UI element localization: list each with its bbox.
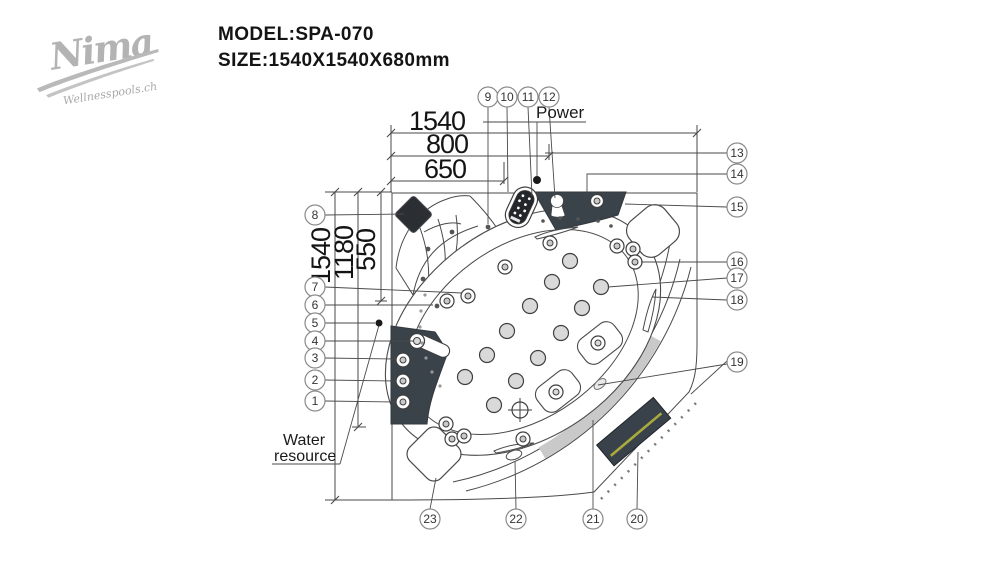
callout-6: 6 — [312, 298, 319, 312]
callout-2: 2 — [312, 373, 319, 387]
callout-10: 10 — [500, 90, 514, 104]
callout-7: 7 — [312, 280, 319, 294]
spa-plan-drawing: 1540 800 650 1540 1180 550 — [0, 0, 1000, 563]
svg-text:resource: resource — [274, 448, 336, 465]
callout-17: 17 — [730, 271, 744, 285]
callout-3: 3 — [312, 351, 319, 365]
callout-18: 18 — [730, 293, 744, 307]
callout-14: 14 — [730, 167, 744, 181]
callout-15: 15 — [730, 200, 744, 214]
spa-spec-sheet: Nima Wellnesspools.ch MODEL:SPA-070 SIZE… — [0, 0, 1000, 563]
callout-11: 11 — [522, 90, 535, 104]
dim-height-550: 550 — [351, 229, 381, 271]
dimension-labels: 1540 800 650 1540 1180 550 — [306, 106, 468, 284]
callout-23: 23 — [423, 512, 437, 526]
power-point-dot — [533, 176, 541, 184]
water-inlet-dot — [376, 320, 383, 327]
water-resource-label: Water resource — [272, 432, 340, 465]
callout-22: 22 — [509, 512, 523, 526]
callout-19: 19 — [730, 355, 744, 369]
callout-12: 12 — [542, 90, 556, 104]
callout-1: 1 — [312, 394, 319, 408]
callout-16: 16 — [730, 255, 744, 269]
dark-pillow — [394, 195, 432, 233]
svg-text:Water: Water — [283, 432, 326, 449]
dim-width-650: 650 — [424, 154, 466, 184]
callout-13: 13 — [730, 146, 744, 160]
callout-9: 9 — [485, 90, 492, 104]
callout-8: 8 — [312, 208, 319, 222]
callout-4: 4 — [312, 334, 319, 348]
panel-jet — [396, 353, 410, 409]
callout-5: 5 — [312, 316, 319, 330]
callout-21: 21 — [586, 512, 600, 526]
power-label: Power — [536, 103, 585, 122]
callout-20: 20 — [630, 512, 644, 526]
